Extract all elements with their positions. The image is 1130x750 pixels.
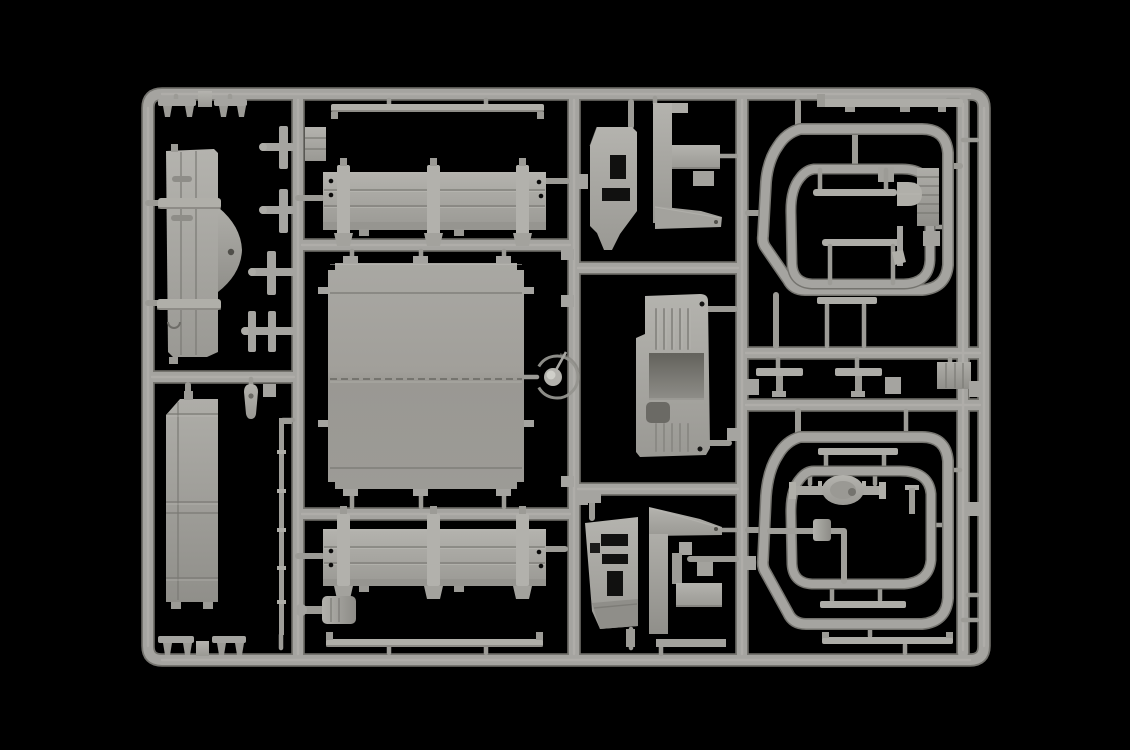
runner-tabs-right [968, 502, 980, 516]
latch-plate [305, 127, 326, 161]
cab-door [636, 294, 710, 457]
model-kit-sprue-photo [0, 0, 1130, 750]
tailgate-panel [166, 391, 218, 609]
bed-floor [318, 256, 534, 496]
sprue-canvas [0, 0, 1130, 750]
